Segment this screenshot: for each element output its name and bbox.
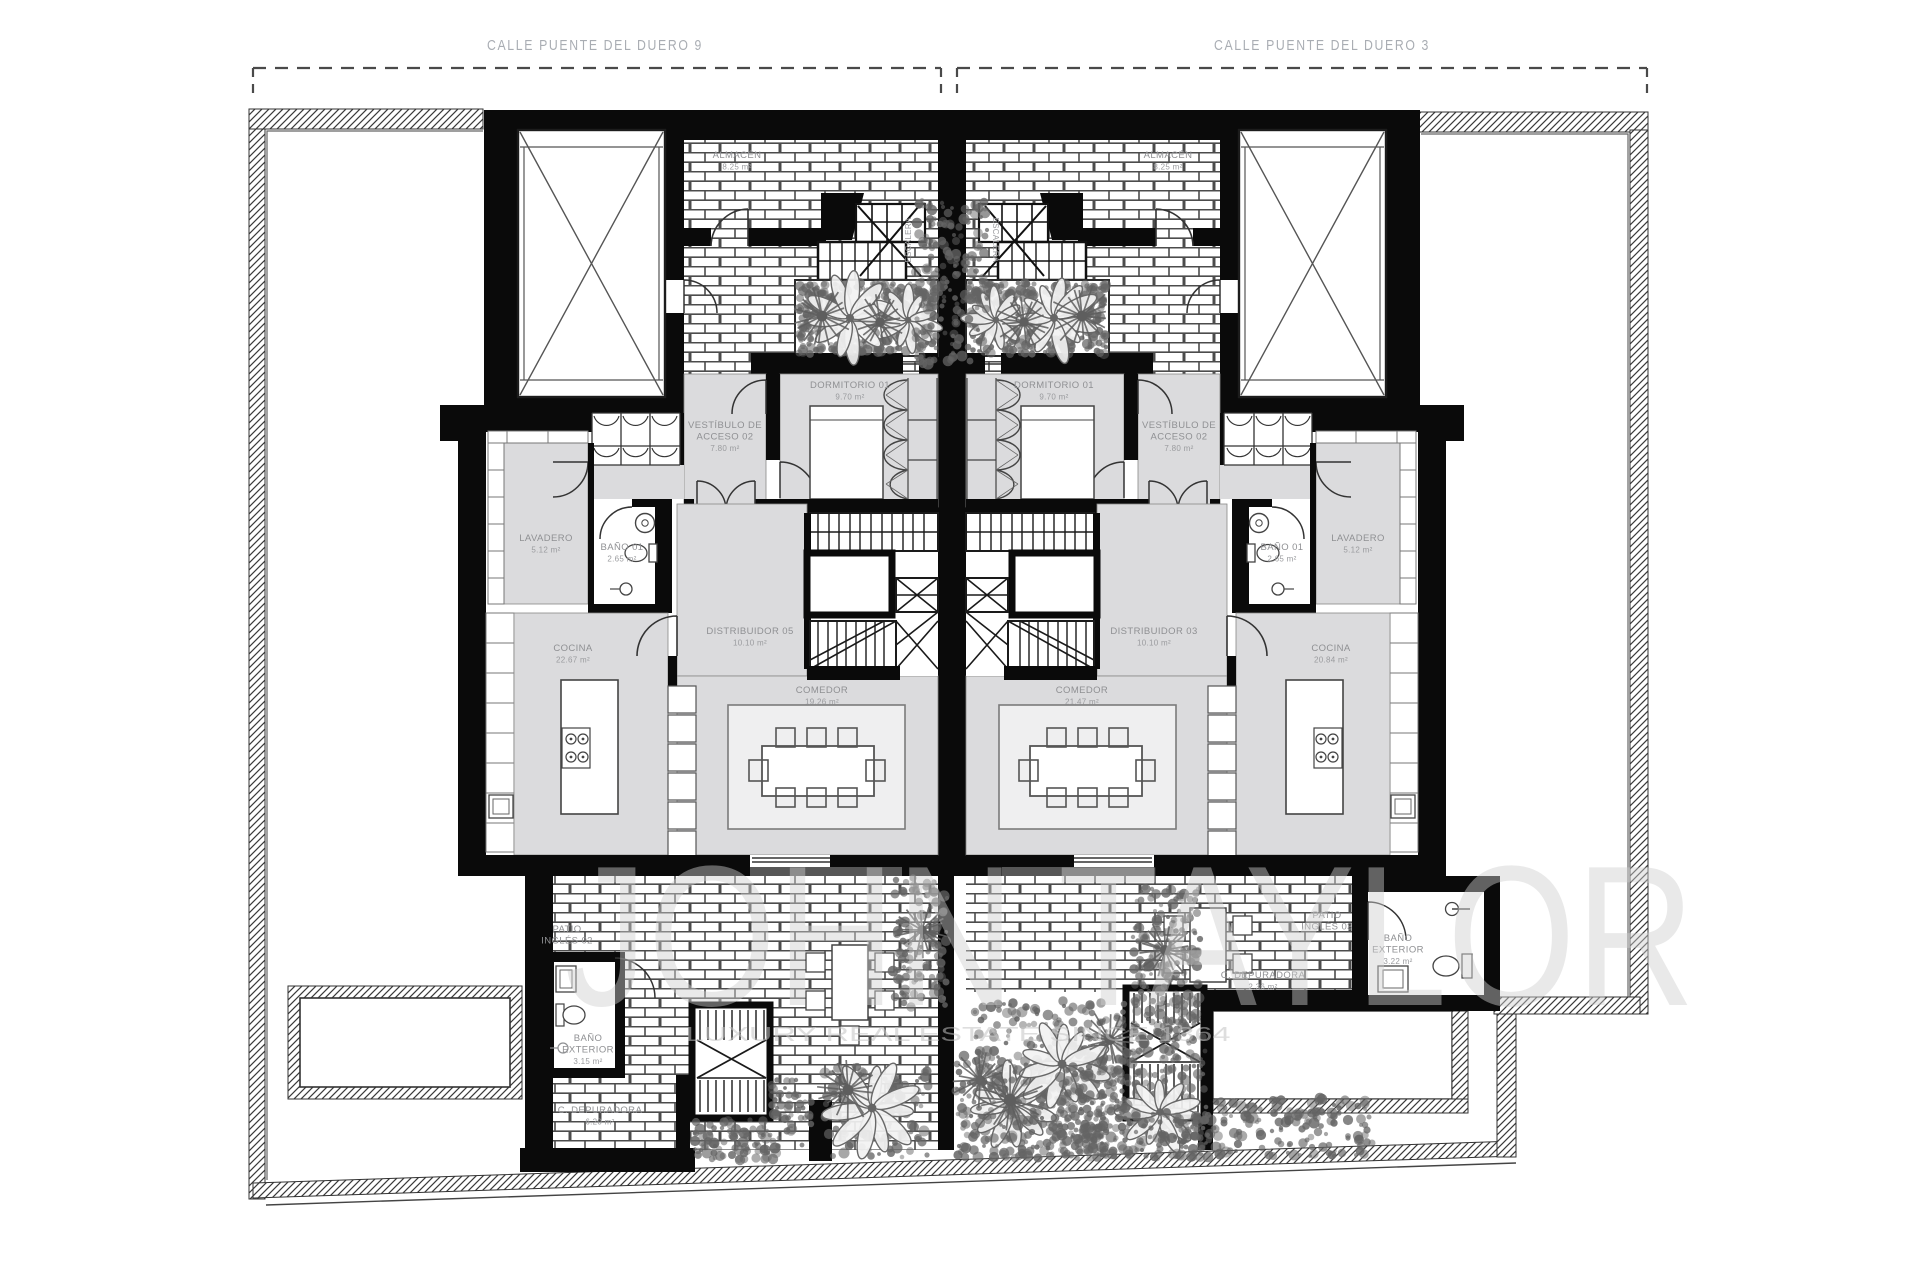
svg-text:COMEDOR: COMEDOR	[1056, 685, 1108, 696]
svg-text:3.15 m²: 3.15 m²	[573, 1057, 602, 1066]
svg-text:9.70 m²: 9.70 m²	[1039, 393, 1068, 402]
svg-text:DISTRIBUIDOR 03: DISTRIBUIDOR 03	[1110, 626, 1197, 637]
svg-text:6.20 m²: 6.20 m²	[585, 1118, 614, 1127]
svg-text:DISTRIBUIDOR 05: DISTRIBUIDOR 05	[706, 626, 793, 637]
svg-text:20.84 m²: 20.84 m²	[1314, 656, 1348, 665]
svg-text:7.80 m²: 7.80 m²	[1164, 444, 1193, 453]
svg-text:7.80 m²: 7.80 m²	[710, 444, 739, 453]
svg-text:CALLE PUENTE DEL DUERO 3: CALLE PUENTE DEL DUERO 3	[1214, 37, 1430, 54]
svg-text:DORMITORIO 01: DORMITORIO 01	[1014, 380, 1094, 391]
svg-text:10.10 m²: 10.10 m²	[1137, 639, 1171, 648]
svg-text:5.12 m²: 5.12 m²	[1343, 546, 1372, 555]
svg-text:ESCALERA: ESCALERA	[991, 217, 1000, 262]
svg-text:ACCESO 02: ACCESO 02	[697, 432, 754, 443]
svg-text:8.25 m²: 8.25 m²	[722, 163, 751, 172]
svg-text:ESCALERA: ESCALERA	[904, 217, 913, 262]
svg-text:8.25 m²: 8.25 m²	[1153, 163, 1182, 172]
svg-text:2.65 m²: 2.65 m²	[1267, 555, 1296, 564]
svg-text:C. DEPURADORA: C. DEPURADORA	[558, 1105, 643, 1116]
svg-text:COCINA: COCINA	[1311, 643, 1351, 654]
svg-text:JOHN TAYLOR: JOHN TAYLOR	[565, 825, 1695, 1048]
svg-text:VESTÍBULO DE: VESTÍBULO DE	[1142, 420, 1216, 431]
svg-text:DORMITORIO 01: DORMITORIO 01	[810, 380, 890, 391]
svg-text:LUXURY REAL ESTATE SINCE 1864: LUXURY REAL ESTATE SINCE 1864	[686, 1024, 1231, 1046]
svg-text:ALMACÉN: ALMACÉN	[1144, 150, 1193, 161]
svg-text:21.47 m²: 21.47 m²	[1065, 698, 1099, 707]
svg-text:LAVADERO: LAVADERO	[1331, 533, 1385, 544]
svg-text:BAÑO 01: BAÑO 01	[1261, 542, 1304, 553]
svg-text:CALLE PUENTE DEL DUERO 9: CALLE PUENTE DEL DUERO 9	[487, 37, 703, 54]
svg-text:VESTÍBULO DE: VESTÍBULO DE	[688, 420, 762, 431]
svg-text:19.26 m²: 19.26 m²	[805, 698, 839, 707]
svg-text:ACCESO 02: ACCESO 02	[1151, 432, 1208, 443]
svg-text:5.12 m²: 5.12 m²	[531, 546, 560, 555]
svg-text:9.70 m²: 9.70 m²	[835, 393, 864, 402]
svg-text:COMEDOR: COMEDOR	[796, 685, 848, 696]
svg-text:COCINA: COCINA	[553, 643, 593, 654]
svg-text:BAÑO 01: BAÑO 01	[601, 542, 644, 553]
svg-text:2.65 m²: 2.65 m²	[607, 555, 636, 564]
svg-text:ALMACÉN: ALMACÉN	[713, 150, 762, 161]
svg-text:22.67 m²: 22.67 m²	[556, 656, 590, 665]
svg-text:10.10 m²: 10.10 m²	[733, 639, 767, 648]
svg-text:LAVADERO: LAVADERO	[519, 533, 573, 544]
